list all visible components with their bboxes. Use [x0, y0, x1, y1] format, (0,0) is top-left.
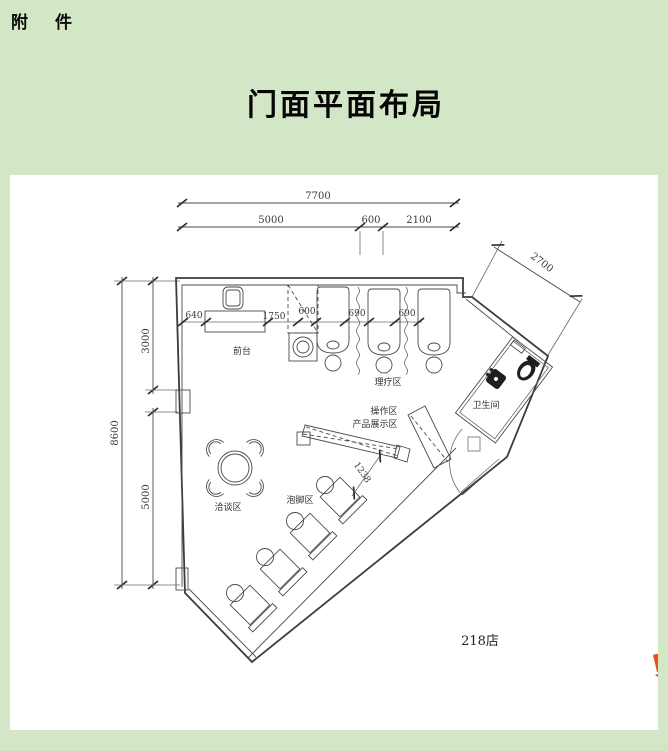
- front-desk: [205, 311, 265, 332]
- foot-chair-4: [228, 583, 277, 632]
- operation-counter: [408, 406, 451, 468]
- floor-plan-panel: 7700 5000 600 2100 2700 8600: [10, 175, 658, 730]
- store-label: 218店: [461, 634, 499, 649]
- dim-total-height: 8600: [110, 420, 121, 445]
- attachment-label: 附 件: [11, 8, 77, 33]
- guest-chair-nw: [202, 435, 223, 456]
- dim-total-width: 7700: [305, 191, 330, 202]
- foot-basin-1: [317, 477, 334, 494]
- label-front-desk: 前台: [233, 345, 251, 357]
- foot-chair-2: [288, 511, 337, 560]
- round-table: [218, 451, 252, 485]
- page-title: 门面平面布局: [0, 80, 668, 124]
- curtain-1: [357, 287, 360, 375]
- dimension-lines-top: 7700 5000 600 2100: [177, 191, 460, 255]
- foot-basin-2: [287, 513, 304, 530]
- dim-mid-width: 600: [361, 215, 380, 226]
- massage-bed-3: [418, 289, 450, 355]
- guest-chair-sw: [202, 479, 223, 500]
- massage-bed-1: [317, 287, 349, 353]
- dim-bed-gap-2: 690: [398, 309, 415, 319]
- floor-plan-svg: 7700 5000 600 2100 2700 8600: [10, 175, 658, 730]
- label-negotiation: 洽谈区: [214, 501, 241, 513]
- label-restroom: 卫生间: [472, 399, 499, 411]
- interior-dimension-line: 640 1750 600 690 690: [178, 307, 424, 326]
- label-display: 产品展示区: [352, 418, 397, 430]
- dim-desk-length: 1750: [263, 312, 286, 322]
- foot-chair-3: [258, 547, 307, 596]
- door-leaf: [462, 462, 500, 495]
- guest-chair-ne: [246, 435, 267, 456]
- bathroom: 卫生间: [450, 337, 553, 495]
- dimension-line-diagonal: 2700: [472, 239, 582, 355]
- dim-desk-offset: 640: [185, 311, 202, 321]
- curtain-2: [405, 287, 408, 375]
- label-foot-bath: 泡脚区: [286, 494, 313, 506]
- door-swing-arc: [450, 429, 462, 495]
- negotiation-area: 洽谈区: [202, 435, 267, 513]
- label-therapy: 理疗区: [374, 376, 401, 388]
- foot-basin-4: [227, 585, 244, 602]
- dim-left-width: 5000: [258, 215, 283, 226]
- foot-chair-1: [318, 475, 367, 524]
- dim-display-length: 1238: [351, 461, 372, 486]
- dim-upper-height: 3000: [141, 328, 152, 353]
- dim-lower-height: 5000: [141, 484, 152, 509]
- dimension-lines-left: 8600 3000 5000: [110, 277, 180, 589]
- foot-basin-3: [257, 549, 274, 566]
- dim-right-width: 2100: [406, 215, 431, 226]
- display-counter-area: 操作区 产品展示区 1238: [297, 405, 451, 499]
- guest-chair-se: [246, 479, 267, 500]
- counter-joint: [394, 445, 410, 462]
- label-operation: 操作区: [370, 405, 397, 417]
- brand-mark: [653, 654, 658, 681]
- therapy-area: 理疗区: [317, 287, 450, 388]
